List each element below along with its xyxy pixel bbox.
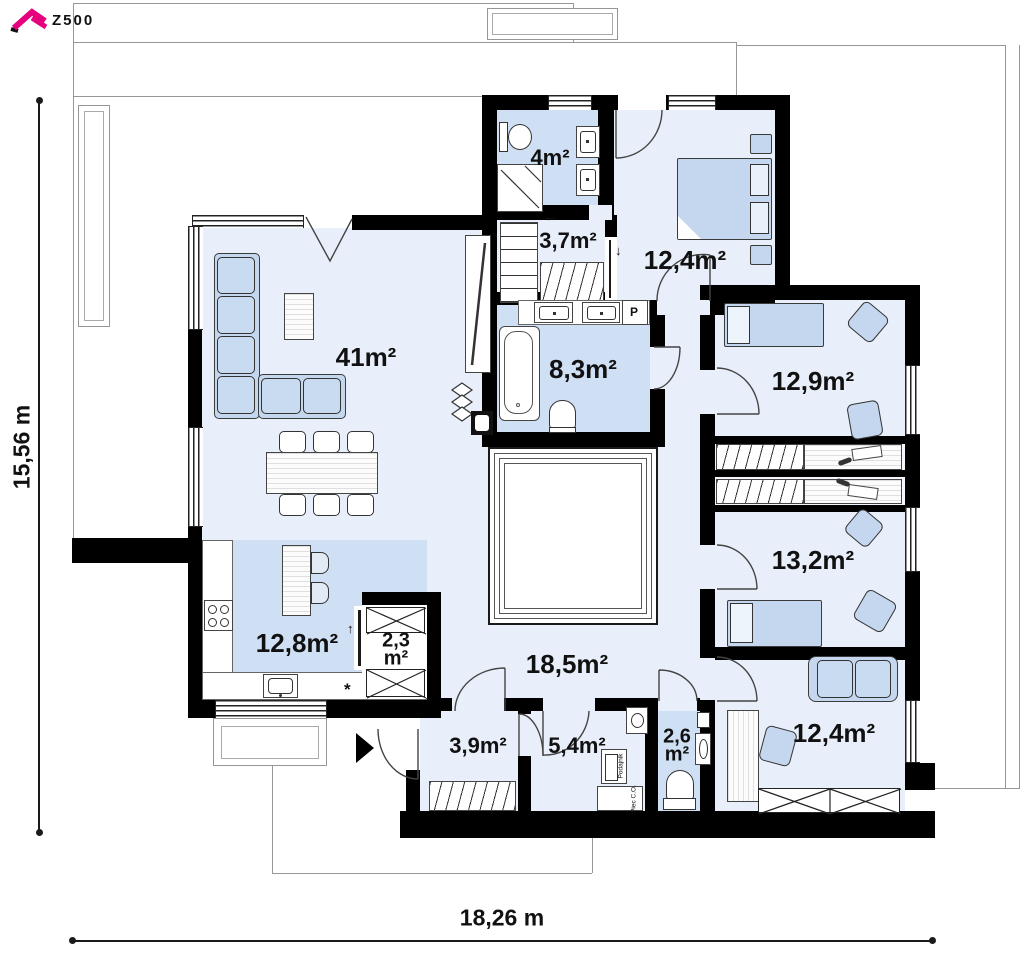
room-label-bedroom-top: 12,4m² (644, 249, 726, 273)
closet-hangers (540, 262, 604, 303)
boiler-sink (626, 707, 648, 734)
roof-outline-h3 (920, 788, 1020, 789)
vestibule-door (455, 668, 505, 711)
bed-pillow (750, 202, 769, 234)
pantry-label-line2: m² (382, 650, 410, 668)
room-label-bathroom: 8,3m² (549, 358, 617, 382)
wc-label-line2: m² (663, 746, 691, 764)
porch-step-v2 (592, 838, 593, 873)
roof-outline-top (73, 3, 573, 4)
vestibule-boiler-door (519, 714, 543, 756)
closet-shelves (500, 222, 538, 303)
bedroom-terrace-door (616, 110, 662, 160)
room-label-living: 41m² (336, 346, 397, 370)
wall-segment (188, 328, 202, 427)
wardrobe-hangers (716, 479, 804, 504)
room-label-wc: 2,6 m² (663, 728, 691, 765)
dimension-line-vertical (38, 100, 40, 833)
sofa (214, 253, 260, 419)
nightstand (750, 134, 772, 154)
office-door (717, 657, 757, 701)
dimension-dot (36, 829, 43, 836)
vestibule-wardrobe (429, 781, 516, 811)
roof-logo-icon (8, 6, 54, 34)
dimension-line-horizontal (72, 940, 933, 942)
wall-segment (775, 95, 790, 300)
bed-pillow (750, 164, 769, 196)
corner-window-top (192, 215, 304, 228)
dimension-width-label: 18,26 m (460, 905, 544, 932)
roof-outline-right2 (1019, 45, 1020, 788)
dimension-height-label: 15,56 m (9, 405, 36, 489)
atrium (488, 447, 658, 625)
wall-segment (482, 432, 665, 447)
porch-step-h (272, 873, 592, 874)
room-label-office: 12,4m² (793, 722, 875, 746)
room-label-hall: 18,5m² (526, 653, 608, 677)
sink (695, 733, 711, 765)
arrow-left-icon: ← (543, 208, 558, 225)
bedroom2-door (717, 545, 757, 589)
wall-segment (400, 811, 935, 838)
door-opening (589, 205, 612, 220)
terrace-top (73, 42, 737, 97)
dimension-dot (69, 937, 76, 944)
window (668, 95, 716, 110)
door-opening (543, 698, 595, 711)
corner-window-side (188, 226, 203, 330)
wall-segment (72, 538, 202, 563)
pantry-slider-leaf (358, 610, 361, 666)
feeder-label: Podajnik (618, 754, 625, 779)
wall-segment (715, 436, 905, 444)
atrium-glazing (504, 463, 642, 609)
furnace-label: Piec C.O. (631, 785, 638, 813)
room-label-bedroom1: 12,9m² (772, 370, 854, 394)
closet-door-leaf (609, 240, 611, 298)
door-opening (657, 300, 710, 315)
wall-segment (715, 470, 905, 477)
door-opening (700, 658, 715, 700)
wc-door (659, 670, 697, 701)
toilet-tank (663, 798, 696, 810)
kitchen-sink (263, 674, 298, 698)
cooktop (204, 600, 233, 631)
brand-logo-text: Z500 (52, 12, 94, 29)
wall-segment (598, 110, 614, 215)
furnace-unit: Piec C.O. (597, 786, 643, 811)
wall-segment (700, 285, 920, 300)
entrance-arrow-icon (356, 733, 374, 763)
wall-segment (650, 315, 665, 347)
wall-segment (905, 763, 935, 790)
stove (471, 411, 493, 435)
wall-segment (362, 592, 427, 605)
dimension-dot (929, 937, 936, 944)
window (905, 507, 920, 572)
arrow-down-icon: ↓ (615, 243, 622, 258)
bed-pillow (730, 603, 753, 643)
room-label-bath-small: 4m² (530, 148, 569, 168)
dining-table (266, 452, 378, 494)
roof-outline-right (1005, 45, 1006, 788)
sofa-small (808, 656, 898, 702)
appliance-star: * (344, 680, 351, 700)
shower-icon (497, 164, 543, 212)
terrace-door-opening (618, 95, 666, 110)
entrance-door (378, 729, 418, 779)
sink (534, 302, 573, 323)
brand-logo: Z500 (8, 6, 128, 36)
room-label-bedroom2: 13,2m² (772, 549, 854, 573)
kitchen-island (282, 545, 311, 616)
dining-chair (347, 494, 374, 516)
floor-plan: P Podajnik Piec C.O. ← ↓ ↑ * 4m² 3,7m² 1… (0, 0, 1024, 955)
sofa-chaise (258, 374, 346, 419)
dining-chair (313, 494, 340, 516)
porch-step-v (272, 766, 273, 873)
wall-segment (352, 215, 484, 230)
toilet (499, 122, 508, 152)
wc-cabinet (697, 712, 710, 728)
nightstand (750, 245, 772, 265)
bed-pillow (727, 306, 750, 344)
sink (576, 164, 600, 196)
arrow-up-icon: ↑ (347, 621, 354, 636)
door-opening (700, 370, 715, 414)
bedroom1-door (717, 368, 759, 414)
tv-icon (465, 235, 491, 373)
window (188, 427, 203, 527)
toilet (666, 770, 694, 800)
dining-chair (347, 431, 374, 453)
dimension-dot (36, 97, 43, 104)
room-label-vestibule: 3,9m² (449, 736, 506, 756)
pantry-cabinet (366, 669, 425, 697)
sink (576, 126, 600, 158)
room-label-closet: 3,7m² (539, 231, 596, 251)
bed-fold (678, 216, 701, 239)
bar-stool (311, 582, 329, 604)
sink (582, 302, 620, 323)
desk-vertical (727, 710, 759, 802)
room-label-pantry: 2,3 m² (382, 632, 410, 669)
dining-chair (279, 494, 306, 516)
porch-inner (221, 726, 319, 759)
room-label-boiler: 5,4m² (548, 736, 605, 756)
bathtub (499, 326, 540, 421)
window (548, 95, 592, 110)
wardrobe-hangers (716, 444, 804, 470)
desk-chair (846, 399, 884, 440)
window (905, 700, 920, 763)
toilet-base (549, 427, 576, 433)
door-opening (700, 545, 715, 589)
wardrobe (758, 788, 900, 813)
bathroom-door (654, 347, 680, 389)
bar-stool (311, 552, 329, 574)
terrace-door (303, 216, 355, 263)
dining-chair (279, 431, 306, 453)
washing-machine-label: P (630, 305, 638, 319)
terrace-planter-inner (84, 111, 104, 321)
toilet-bowl (508, 124, 532, 150)
toilet (549, 400, 576, 428)
room-label-kitchen: 12,8m² (256, 632, 338, 656)
wall-segment (715, 505, 905, 512)
chimney-inner (492, 13, 613, 35)
window (905, 365, 920, 435)
coffee-table (284, 293, 314, 340)
dining-chair (313, 431, 340, 453)
window (215, 700, 327, 718)
